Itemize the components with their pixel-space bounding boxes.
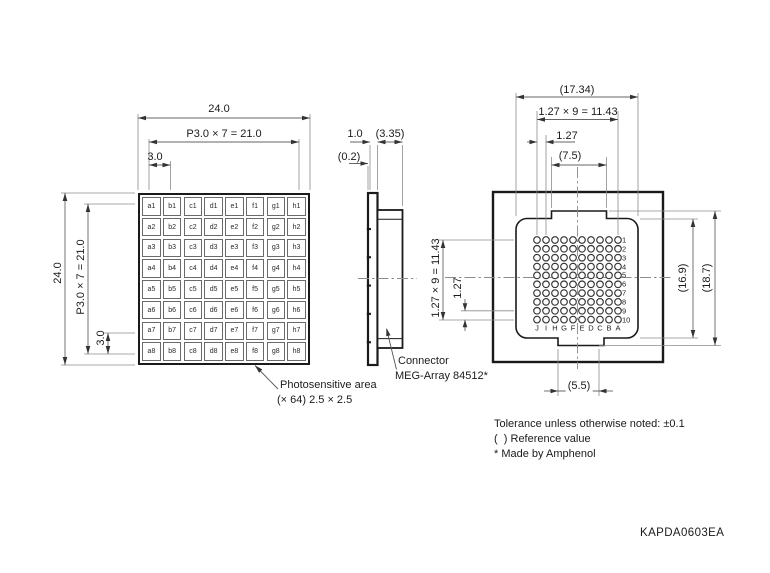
pin-A7 [615, 290, 622, 297]
pin-C7 [597, 290, 604, 297]
pin-H2 [552, 246, 559, 253]
pin-E4 [579, 263, 586, 270]
pin-J4 [534, 263, 541, 270]
grid-cell-a4: a4 [142, 259, 161, 278]
grid-cell-g1: g1 [267, 197, 286, 216]
pin-D6 [588, 281, 595, 288]
pin-E5 [579, 272, 586, 279]
pin-F2 [570, 246, 577, 253]
pin-E2 [579, 246, 586, 253]
grid-cell-d7: d7 [204, 322, 223, 341]
grid-cell-c2: c2 [184, 218, 203, 237]
pin-B6 [606, 281, 613, 288]
grid-cell-g2: g2 [267, 218, 286, 237]
pin-F3 [570, 254, 577, 261]
grid-cell-e8: e8 [225, 342, 244, 361]
pin-H3 [552, 254, 559, 261]
dim-back-overall: (17.34) [560, 84, 595, 96]
grid-cell-b4: b4 [163, 259, 182, 278]
grid-cell-e5: e5 [225, 280, 244, 299]
pin-E8 [579, 299, 586, 306]
pin-G8 [561, 299, 568, 306]
grid-cell-b5: b5 [163, 280, 182, 299]
pin-J6 [534, 281, 541, 288]
pin-D10 [588, 316, 595, 323]
grid-cell-b3: b3 [163, 239, 182, 258]
pin-E3 [579, 254, 586, 261]
dim-front-pitch-width: 3.0 [147, 151, 162, 163]
side-connector [378, 210, 403, 348]
drawing-lines [0, 0, 770, 573]
pin-F1 [570, 237, 577, 244]
pin-A3 [615, 254, 622, 261]
pin-J3 [534, 254, 541, 261]
pin-F5 [570, 272, 577, 279]
grid-cell-f6: f6 [246, 301, 265, 320]
pin-D3 [588, 254, 595, 261]
grid-cell-c3: c3 [184, 239, 203, 258]
dim-side-window: (0.2) [338, 151, 361, 163]
grid-cell-e2: e2 [225, 218, 244, 237]
pin-B10 [606, 316, 613, 323]
grid-cell-c6: c6 [184, 301, 203, 320]
pin-A1 [615, 237, 622, 244]
pin-J10 [534, 316, 541, 323]
dim-side-thickness: 1.0 [347, 128, 362, 140]
grid-cell-g3: g3 [267, 239, 286, 258]
grid-cell-h3: h3 [287, 239, 306, 258]
dim-front-pitch-total-height: P3.0 × 7 = 21.0 [75, 239, 87, 314]
pin-F8 [570, 299, 577, 306]
pin-B2 [606, 246, 613, 253]
pin-I6 [543, 281, 550, 288]
pin-A9 [615, 308, 622, 315]
pin-J5 [534, 272, 541, 279]
grid-cell-c1: c1 [184, 197, 203, 216]
grid-cell-a8: a8 [142, 342, 161, 361]
note-reference-value: ( ) Reference value [494, 433, 591, 445]
pin-B1 [606, 237, 613, 244]
pin-B8 [606, 299, 613, 306]
pin-A2 [615, 246, 622, 253]
pin-E7 [579, 290, 586, 297]
grid-cell-d3: d3 [204, 239, 223, 258]
pin-A10 [615, 316, 622, 323]
pin-A5 [615, 272, 622, 279]
dim-front-overall-height: 24.0 [52, 262, 64, 283]
pin-D1 [588, 237, 595, 244]
pin-C9 [597, 308, 604, 315]
grid-cell-h8: h8 [287, 342, 306, 361]
photosensitive-area-label: Photosensitive area [280, 379, 377, 391]
grid-cell-c7: c7 [184, 322, 203, 341]
dim-back-pin-span-h: 1.27 × 9 = 11.43 [538, 106, 617, 118]
pin-C6 [597, 281, 604, 288]
pin-I7 [543, 290, 550, 297]
pin-I9 [543, 308, 550, 315]
pin-I5 [543, 272, 550, 279]
grid-cell-a2: a2 [142, 218, 161, 237]
dim-side-connector-depth: (3.35) [376, 128, 405, 140]
pin-G3 [561, 254, 568, 261]
grid-cell-f1: f1 [246, 197, 265, 216]
technical-drawing: a1b1c1d1e1f1g1h1a2b2c2d2e2f2g2h2a3b3c3d3… [0, 0, 770, 573]
pin-G1 [561, 237, 568, 244]
pin-D8 [588, 299, 595, 306]
grid-cell-f3: f3 [246, 239, 265, 258]
connector-label: Connector [398, 355, 449, 367]
pin-H9 [552, 308, 559, 315]
grid-cell-e4: e4 [225, 259, 244, 278]
pin-B3 [606, 254, 613, 261]
pin-B7 [606, 290, 613, 297]
pin-G9 [561, 308, 568, 315]
grid-cell-e1: e1 [225, 197, 244, 216]
pin-J7 [534, 290, 541, 297]
pin-G4 [561, 263, 568, 270]
pin-H5 [552, 272, 559, 279]
grid-cell-f7: f7 [246, 322, 265, 341]
pin-G7 [561, 290, 568, 297]
grid-cell-e6: e6 [225, 301, 244, 320]
grid-cell-b2: b2 [163, 218, 182, 237]
pin-D4 [588, 263, 595, 270]
note-amphenol: * Made by Amphenol [494, 448, 596, 460]
grid-cell-a1: a1 [142, 197, 161, 216]
pin-I3 [543, 254, 550, 261]
grid-cell-d4: d4 [204, 259, 223, 278]
pin-C8 [597, 299, 604, 306]
pin-G6 [561, 281, 568, 288]
photosensitive-area-size: (× 64) 2.5 × 2.5 [277, 394, 352, 406]
pin-D9 [588, 308, 595, 315]
dim-back-body-height: (16.9) [677, 264, 689, 293]
sensor-grid: a1b1c1d1e1f1g1h1a2b2c2d2e2f2g2h2a3b3c3d3… [138, 193, 310, 365]
pin-A8 [615, 299, 622, 306]
pin-E10 [579, 316, 586, 323]
grid-cell-b8: b8 [163, 342, 182, 361]
side-plate [368, 193, 378, 365]
pin-C4 [597, 263, 604, 270]
grid-cell-g5: g5 [267, 280, 286, 299]
grid-cell-b1: b1 [163, 197, 182, 216]
dim-back-pin-pitch-h: 1.27 [556, 130, 577, 142]
grid-cell-h7: h7 [287, 322, 306, 341]
grid-cell-d2: d2 [204, 218, 223, 237]
grid-cell-c4: c4 [184, 259, 203, 278]
pin-J9 [534, 308, 541, 315]
pin-I1 [543, 237, 550, 244]
grid-cell-a6: a6 [142, 301, 161, 320]
note-tolerance: Tolerance unless otherwise noted: ±0.1 [494, 418, 685, 430]
pin-A6 [615, 281, 622, 288]
pin-B9 [606, 308, 613, 315]
pin-E9 [579, 308, 586, 315]
grid-cell-a5: a5 [142, 280, 161, 299]
pin-H10 [552, 316, 559, 323]
pin-G10 [561, 316, 568, 323]
dim-back-pin-pitch-v: 1.27 [452, 277, 464, 298]
pin-C5 [597, 272, 604, 279]
pin-F6 [570, 281, 577, 288]
grid-cell-e3: e3 [225, 239, 244, 258]
pin-D2 [588, 246, 595, 253]
dim-back-overall-height: (18.7) [701, 264, 713, 293]
pin-H4 [552, 263, 559, 270]
pin-B5 [606, 272, 613, 279]
pin-J8 [534, 299, 541, 306]
pin-E1 [579, 237, 586, 244]
pin-H6 [552, 281, 559, 288]
grid-cell-g8: g8 [267, 342, 286, 361]
pin-G5 [561, 272, 568, 279]
pin-I2 [543, 246, 550, 253]
pin-E6 [579, 281, 586, 288]
grid-cell-b7: b7 [163, 322, 182, 341]
grid-cell-e7: e7 [225, 322, 244, 341]
grid-cell-f4: f4 [246, 259, 265, 278]
pin-F9 [570, 308, 577, 315]
grid-cell-f2: f2 [246, 218, 265, 237]
pin-C2 [597, 246, 604, 253]
pin-H8 [552, 299, 559, 306]
grid-cell-d1: d1 [204, 197, 223, 216]
pin-B4 [606, 263, 613, 270]
grid-cell-h1: h1 [287, 197, 306, 216]
pin-H7 [552, 290, 559, 297]
pin-C1 [597, 237, 604, 244]
pin-A4 [615, 263, 622, 270]
dim-front-pitch-height: 3.0 [95, 330, 107, 345]
pin-H1 [552, 237, 559, 244]
dim-back-tab-top: (7.5) [559, 150, 582, 162]
grid-cell-f8: f8 [246, 342, 265, 361]
pin-F7 [570, 290, 577, 297]
pin-I4 [543, 263, 550, 270]
grid-cell-h5: h5 [287, 280, 306, 299]
pin-C10 [597, 316, 604, 323]
grid-cell-b6: b6 [163, 301, 182, 320]
pin-D5 [588, 272, 595, 279]
grid-cell-d5: d5 [204, 280, 223, 299]
grid-cell-d8: d8 [204, 342, 223, 361]
pin-G2 [561, 246, 568, 253]
grid-cell-h6: h6 [287, 301, 306, 320]
pin-C3 [597, 254, 604, 261]
grid-cell-g6: g6 [267, 301, 286, 320]
grid-cell-a3: a3 [142, 239, 161, 258]
grid-cell-f5: f5 [246, 280, 265, 299]
grid-cell-h2: h2 [287, 218, 306, 237]
pin-F10 [570, 316, 577, 323]
grid-cell-g7: g7 [267, 322, 286, 341]
pin-F4 [570, 263, 577, 270]
connector-type-label: MEG-Array 84512* [395, 370, 488, 382]
dim-front-pitch-total-width: P3.0 × 7 = 21.0 [186, 128, 261, 140]
pin-J1 [534, 237, 541, 244]
grid-cell-g4: g4 [267, 259, 286, 278]
dim-back-pin-span-v: 1.27 × 9 = 11.43 [430, 238, 442, 317]
grid-cell-c5: c5 [184, 280, 203, 299]
grid-cell-c8: c8 [184, 342, 203, 361]
pin-J2 [534, 246, 541, 253]
grid-cell-h4: h4 [287, 259, 306, 278]
dim-front-overall-width: 24.0 [208, 103, 229, 115]
pin-I8 [543, 299, 550, 306]
drawing-number: KAPDA0603EA [640, 527, 724, 539]
pin-D7 [588, 290, 595, 297]
pin-I10 [543, 316, 550, 323]
grid-cell-d6: d6 [204, 301, 223, 320]
dim-back-tab-bottom: (5.5) [566, 380, 593, 392]
grid-cell-a7: a7 [142, 322, 161, 341]
